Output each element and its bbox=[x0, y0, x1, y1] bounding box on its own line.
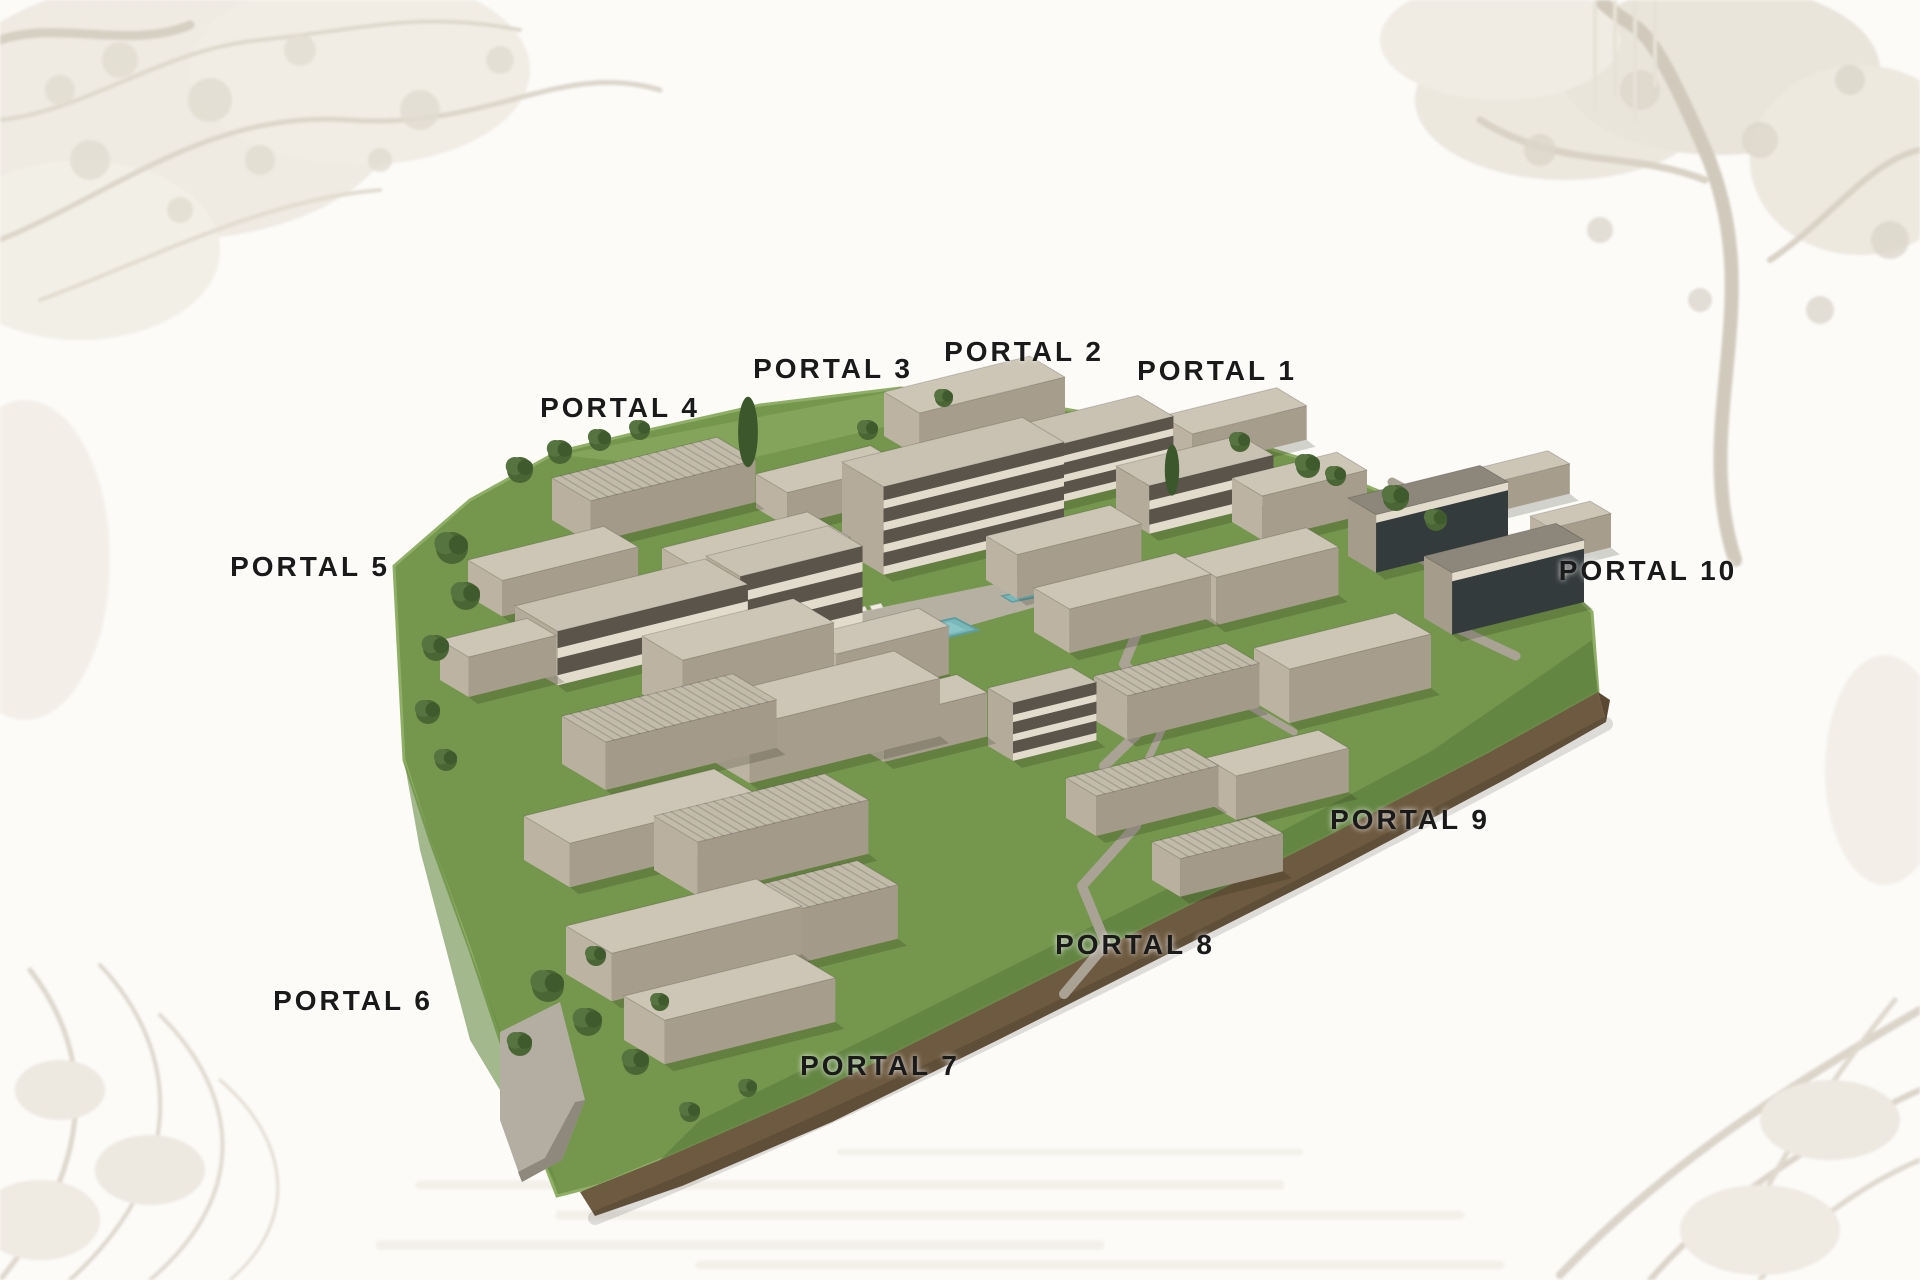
portal-label-8: PORTAL 8 bbox=[1055, 929, 1215, 961]
masterplan-page: PORTAL 1 PORTAL 2 PORTAL 3 PORTAL 4 PORT… bbox=[0, 0, 1920, 1280]
portal-label-4: PORTAL 4 bbox=[540, 392, 700, 424]
portal-labels: PORTAL 1 PORTAL 2 PORTAL 3 PORTAL 4 PORT… bbox=[0, 0, 1920, 1280]
portal-label-9: PORTAL 9 bbox=[1330, 804, 1490, 836]
portal-label-3: PORTAL 3 bbox=[753, 353, 913, 385]
portal-label-10: PORTAL 10 bbox=[1559, 555, 1737, 587]
portal-label-2: PORTAL 2 bbox=[944, 336, 1104, 368]
portal-label-1: PORTAL 1 bbox=[1137, 355, 1297, 387]
portal-label-6: PORTAL 6 bbox=[273, 985, 433, 1017]
portal-label-7: PORTAL 7 bbox=[800, 1050, 960, 1082]
portal-label-5: PORTAL 5 bbox=[230, 551, 390, 583]
